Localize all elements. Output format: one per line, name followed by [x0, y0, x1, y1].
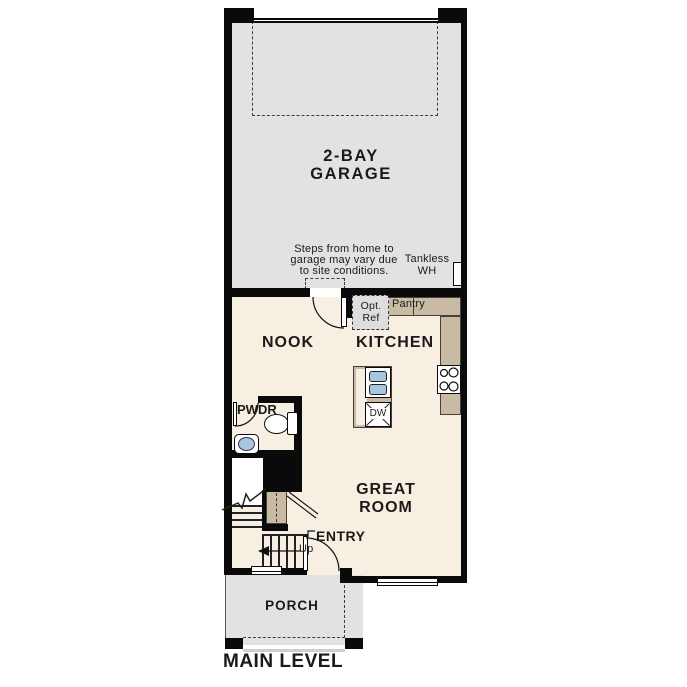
up-label: Up: [299, 543, 313, 555]
parking-dashed-outline: [252, 21, 438, 116]
kitchen-label: KITCHEN: [356, 334, 434, 352]
steps-note-line3: to site conditions.: [300, 265, 389, 277]
porch-corner-right: [345, 638, 363, 649]
wall-top-left: [224, 8, 254, 23]
pantry-label: Pantry: [392, 298, 425, 310]
opt-ref-label-line2: Ref: [363, 313, 380, 325]
garage-label-line2: GARAGE: [310, 165, 391, 183]
sink-basin: [369, 384, 387, 395]
porch-label: PORCH: [265, 599, 319, 614]
tankless-label-line2: WH: [403, 265, 451, 277]
stair-tread: [286, 534, 288, 568]
great-room-label-line2: ROOM: [359, 499, 413, 517]
water-heater: [453, 262, 462, 286]
stair-tread: [278, 534, 280, 568]
opt-ref-label-line1: Opt.: [361, 301, 382, 313]
closet-dash-line: [276, 493, 277, 522]
great-room-label-line1: GREAT: [356, 481, 416, 499]
stair-tread: [294, 534, 296, 568]
porch-corner-left: [225, 638, 243, 649]
garage-label-line1: 2-BAY: [323, 147, 379, 165]
entry-label: ENTRY: [316, 529, 365, 544]
closet-wall-bottom: [262, 524, 288, 531]
front-wall-jog: [340, 568, 352, 583]
stair-tread: [232, 526, 263, 528]
pwdr-label: PWDR: [237, 403, 277, 417]
main-level-title: MAIN LEVEL: [223, 652, 343, 673]
stair-tread: [262, 534, 264, 568]
garage-step-dashed-outline: [305, 278, 345, 289]
tankless-label-line1: Tankless: [403, 253, 451, 265]
entry-closet: [266, 490, 287, 524]
stairwell-void: [232, 458, 263, 506]
wall-garage-house-left: [224, 288, 310, 297]
floor-plan: 2-BAY GARAGE Steps from home to garage m…: [0, 0, 687, 687]
sink-bowl: [238, 437, 255, 451]
stair-tread: [270, 534, 272, 568]
stair-landing-line: [262, 534, 308, 536]
garage-door: [254, 8, 438, 23]
stair-tread: [232, 519, 263, 521]
stair-tread: [232, 512, 263, 514]
great-room-window: [377, 578, 438, 586]
range: [437, 365, 461, 394]
stair-window: [251, 566, 282, 575]
garage-entry-door-leaf: [341, 297, 347, 327]
toilet-tank: [287, 412, 298, 435]
stair-tread: [232, 505, 263, 507]
sink-basin: [369, 371, 387, 382]
porch-dash-v: [344, 585, 345, 638]
stair-wall-mass: [263, 450, 302, 492]
nook-label: NOOK: [262, 334, 314, 352]
porch-dash-h: [243, 637, 345, 638]
burner-icons: [438, 366, 460, 393]
dw-label: DW: [369, 408, 388, 419]
